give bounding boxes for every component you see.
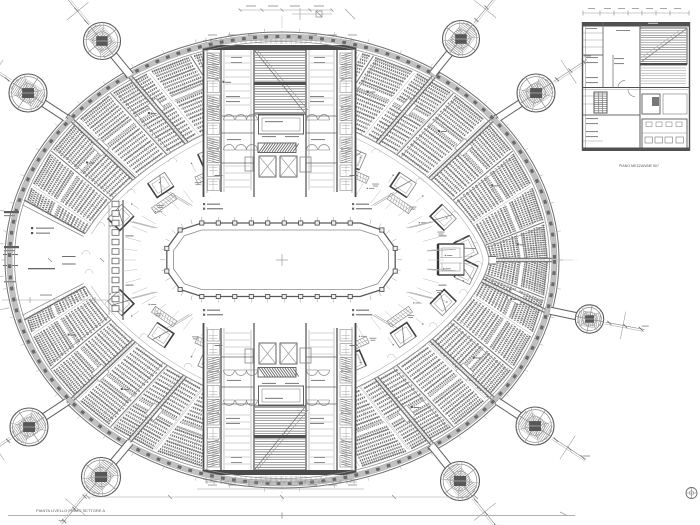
svg-text:PIANO MEZZANINE 507: PIANO MEZZANINE 507 bbox=[619, 164, 659, 168]
svg-text:PIANTA LIVELLO PRIMO SETTORE: PIANTA LIVELLO PRIMO SETTORE A bbox=[36, 508, 105, 513]
